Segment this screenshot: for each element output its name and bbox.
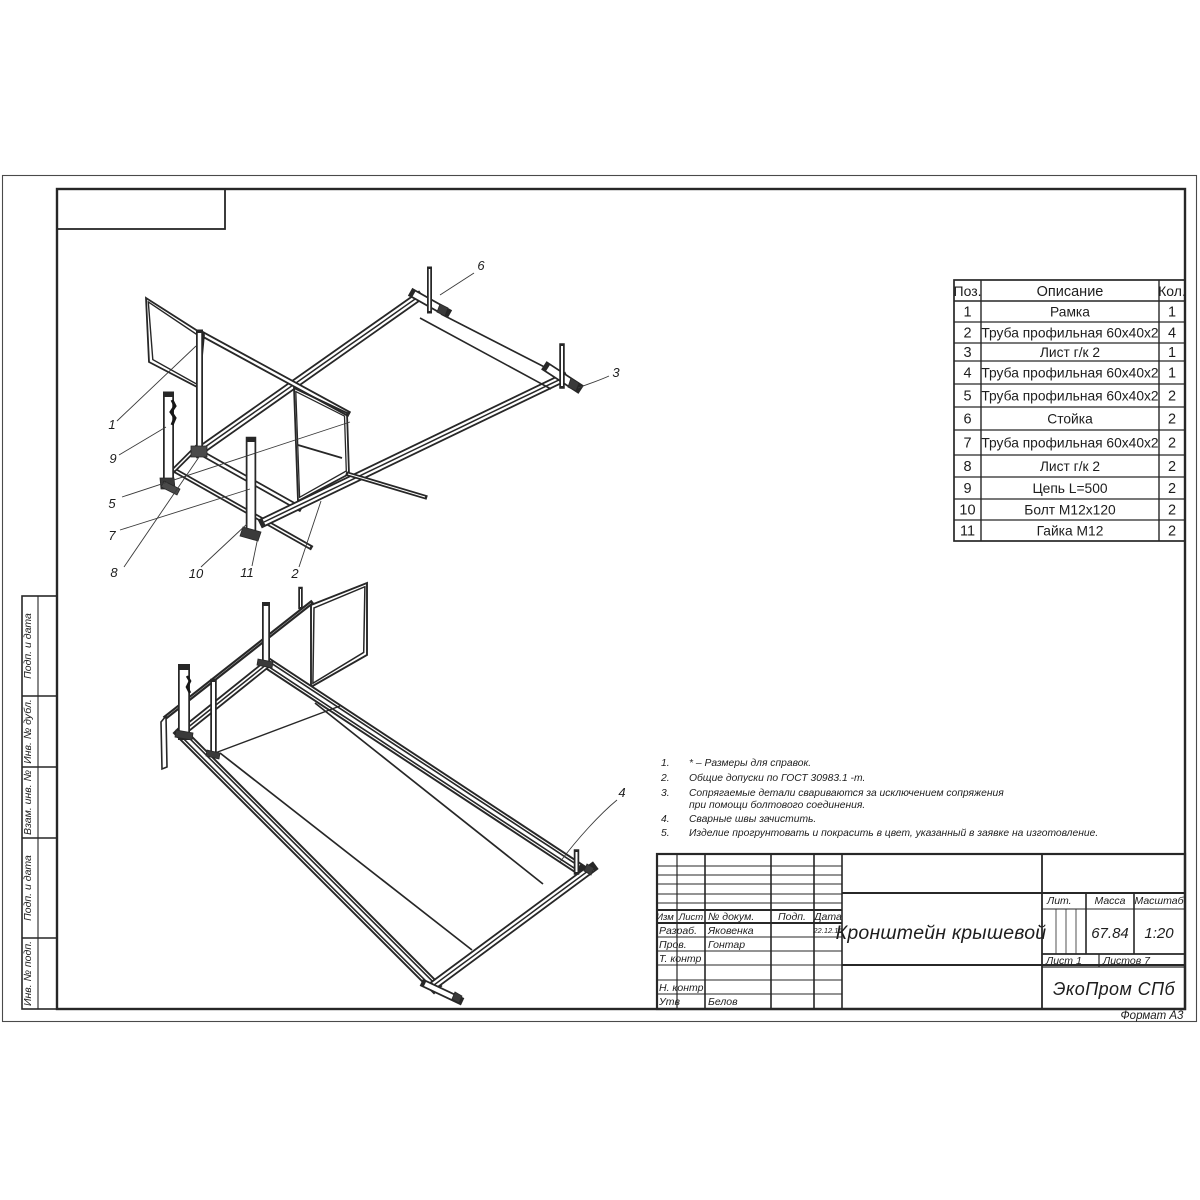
svg-text:2: 2 — [290, 566, 299, 581]
svg-text:Цепь L=500: Цепь L=500 — [1032, 481, 1107, 496]
svg-text:Лист г/к 2: Лист г/к 2 — [1040, 459, 1100, 474]
svg-text:Изделие прогрунтовать и покрас: Изделие прогрунтовать и покрасить в цвет… — [689, 828, 1098, 839]
svg-text:2: 2 — [1168, 436, 1176, 452]
svg-text:Яковенка: Яковенка — [707, 925, 754, 937]
svg-text:Формат А3: Формат А3 — [1121, 1010, 1185, 1022]
svg-text:Т. контр: Т. контр — [659, 953, 702, 965]
svg-text:67.84: 67.84 — [1091, 925, 1129, 942]
svg-text:Разраб.: Разраб. — [659, 925, 697, 937]
svg-text:ЭкоПром СПб: ЭкоПром СПб — [1053, 979, 1175, 999]
svg-text:1: 1 — [1168, 345, 1176, 361]
svg-text:4: 4 — [963, 366, 971, 382]
svg-text:Утв: Утв — [658, 996, 680, 1008]
svg-text:Сопрягаемые детали свариваются: Сопрягаемые детали свариваются за исключ… — [689, 788, 1004, 799]
svg-text:Взам. инв. №: Взам. инв. № — [22, 770, 34, 835]
svg-text:Гайка М12: Гайка М12 — [1037, 524, 1104, 539]
svg-text:8: 8 — [110, 565, 118, 580]
svg-text:Лист 1: Лист 1 — [1045, 955, 1082, 967]
svg-text:* – Размеры для справок.: * – Размеры для справок. — [689, 758, 811, 769]
svg-text:Изм: Изм — [656, 912, 674, 923]
svg-text:Масса: Масса — [1094, 895, 1125, 907]
svg-text:2: 2 — [1168, 412, 1176, 428]
svg-text:Рамка: Рамка — [1050, 305, 1090, 320]
svg-text:1:20: 1:20 — [1144, 925, 1174, 942]
svg-text:Инв. № дубл.: Инв. № дубл. — [22, 699, 34, 764]
svg-text:Описание: Описание — [1037, 284, 1104, 300]
svg-text:1: 1 — [1168, 366, 1176, 382]
svg-text:Гонтар: Гонтар — [708, 939, 745, 951]
svg-text:Общие допуски по ГОСТ 30983.1: Общие допуски по ГОСТ 30983.1 -т. — [689, 772, 865, 784]
svg-text:8: 8 — [963, 459, 971, 475]
svg-text:10: 10 — [959, 503, 975, 519]
svg-text:9: 9 — [109, 451, 116, 466]
svg-text:Подп. и дата: Подп. и дата — [22, 855, 34, 921]
svg-text:7: 7 — [108, 528, 116, 543]
svg-text:Лит.: Лит. — [1046, 895, 1072, 907]
svg-text:Стойка: Стойка — [1047, 412, 1093, 427]
svg-text:5: 5 — [108, 496, 116, 511]
svg-text:1.: 1. — [661, 758, 670, 769]
svg-text:Н. контр: Н. контр — [659, 982, 704, 994]
svg-text:2: 2 — [1168, 459, 1176, 475]
svg-text:10: 10 — [189, 566, 204, 581]
svg-text:3: 3 — [612, 365, 620, 380]
svg-text:Болт М12х120: Болт М12х120 — [1024, 503, 1116, 518]
svg-text:3: 3 — [963, 345, 971, 361]
svg-text:1: 1 — [108, 417, 115, 432]
svg-text:9: 9 — [963, 481, 971, 497]
svg-text:5: 5 — [963, 389, 971, 405]
svg-text:Пров.: Пров. — [659, 939, 687, 951]
svg-text:Подп.: Подп. — [778, 911, 806, 923]
svg-text:Кол.: Кол. — [1158, 283, 1186, 299]
svg-text:3.: 3. — [661, 788, 670, 799]
svg-text:Труба профильная 60х40х2: Труба профильная 60х40х2 — [981, 366, 1158, 381]
svg-text:Подп. и дата: Подп. и дата — [22, 613, 34, 679]
svg-text:Сварные швы зачистить.: Сварные швы зачистить. — [689, 814, 816, 825]
svg-text:Кронштейн крышевой: Кронштейн крышевой — [836, 922, 1047, 944]
svg-text:2: 2 — [1168, 524, 1176, 540]
svg-text:6: 6 — [963, 412, 971, 428]
svg-text:Инв. № подп.: Инв. № подп. — [22, 941, 34, 1006]
svg-text:Белов: Белов — [708, 996, 738, 1008]
svg-text:Труба профильная 60х40х2: Труба профильная 60х40х2 — [981, 389, 1158, 404]
svg-text:1: 1 — [963, 305, 971, 321]
svg-text:2.: 2. — [660, 773, 670, 784]
svg-text:11: 11 — [960, 524, 975, 540]
svg-text:2: 2 — [963, 326, 971, 342]
svg-text:при помощи болтового соединени: при помощи болтового соединения. — [689, 799, 865, 811]
svg-text:11: 11 — [240, 565, 254, 580]
svg-text:2: 2 — [1168, 503, 1176, 519]
svg-text:2: 2 — [1168, 389, 1176, 405]
svg-text:Лист г/к 2: Лист г/к 2 — [1040, 345, 1100, 360]
svg-text:4: 4 — [1168, 326, 1176, 342]
svg-text:Труба профильная 60х40х2: Труба профильная 60х40х2 — [981, 436, 1158, 451]
svg-text:Листов 7: Листов 7 — [1102, 955, 1151, 967]
svg-text:7: 7 — [963, 436, 971, 452]
svg-text:Поз.: Поз. — [954, 283, 982, 299]
svg-text:1: 1 — [1168, 305, 1176, 321]
svg-text:4.: 4. — [661, 814, 670, 825]
svg-text:2: 2 — [1168, 481, 1176, 497]
svg-text:Масштаб: Масштаб — [1134, 895, 1184, 907]
svg-text:Труба профильная 60х40х2: Труба профильная 60х40х2 — [981, 326, 1158, 341]
svg-text:№ докум.: № докум. — [708, 911, 754, 923]
svg-text:Лист: Лист — [678, 912, 704, 923]
svg-text:5.: 5. — [661, 828, 670, 839]
svg-text:4: 4 — [618, 785, 625, 800]
svg-text:6: 6 — [477, 258, 485, 273]
